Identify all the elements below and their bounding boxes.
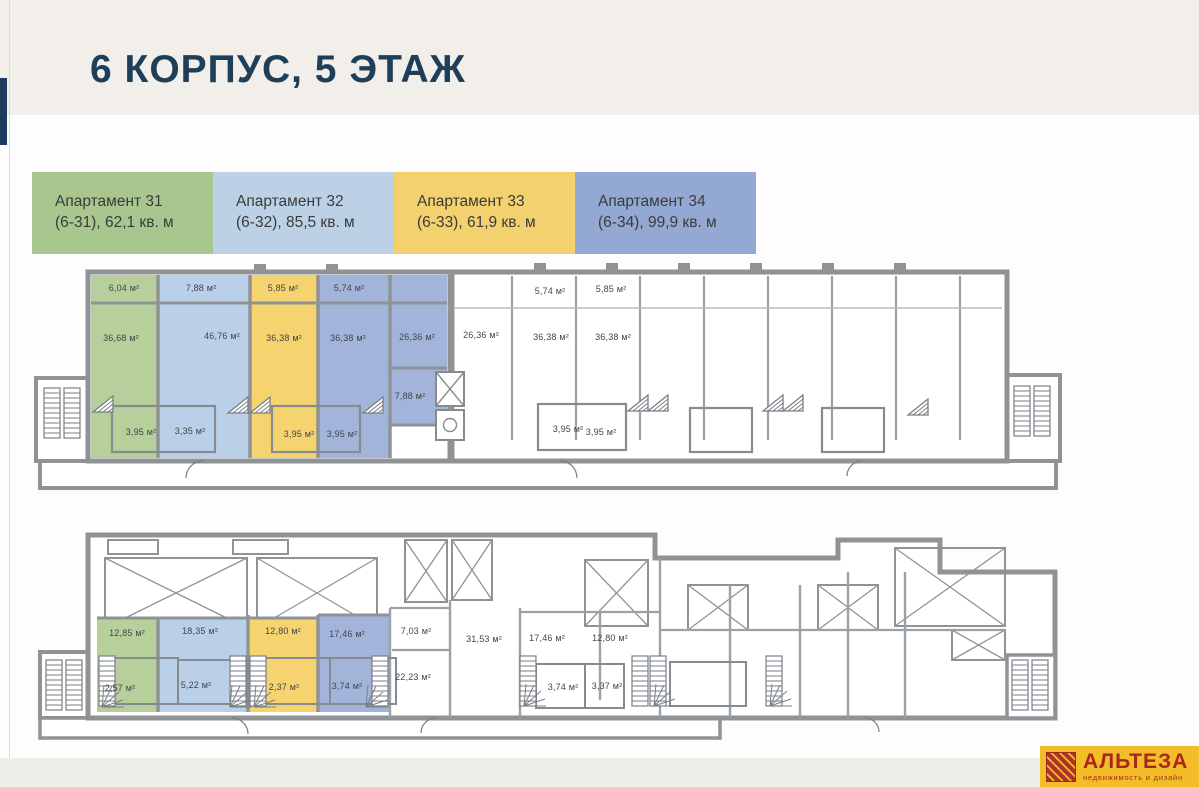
area-label: 3,74 м² [332,681,363,691]
lower-right-stairwell [1007,655,1055,718]
lower-terrace [40,718,720,738]
stairs-icon [1014,386,1030,436]
area-label: 5,85 м² [596,284,627,294]
area-label: 36,38 м² [595,332,631,342]
room-dividers-lower [390,558,1007,718]
apartment-32-area [158,275,250,458]
area-label: 36,38 м² [330,333,366,343]
area-label: 26,36 м² [463,330,499,340]
area-label: 3,95 м² [586,427,617,437]
area-label: 36,68 м² [103,333,139,343]
floorplans: 6,04 м²7,88 м²5,85 м²5,74 м²36,68 м²46,7… [0,0,1199,787]
area-label: 7,88 м² [186,283,217,293]
logo-tagline: недвижимость и дизайн [1083,774,1188,782]
doors-upper [186,461,862,478]
doors-lower [232,718,879,734]
area-label: 36,38 м² [266,333,302,343]
company-logo: АЛЬТЕЗА недвижимость и дизайн [1040,746,1199,787]
upper-right-stairwell [1007,375,1060,461]
area-label: 3,95 м² [284,429,315,439]
stairs-icon [66,660,82,710]
area-label: 22,23 м² [395,672,431,682]
upper-plan-labels: 6,04 м²7,88 м²5,85 м²5,74 м²36,68 м²46,7… [0,0,1199,787]
bathrooms-lower [112,658,746,708]
area-label: 18,35 м² [182,626,218,636]
area-label: 6,04 м² [109,283,140,293]
upper-left-stairwell [36,378,88,461]
area-label: 5,22 м² [181,680,212,690]
floorplan-drawing [0,0,1199,787]
apartment-34-area [318,275,390,458]
logo-mark-icon [1046,752,1076,782]
area-label: 2,57 м² [105,683,136,693]
area-label: 12,80 м² [592,633,628,643]
bottom-band [0,758,1199,787]
apartment-31-lower [97,618,158,712]
stairs-icon [64,388,80,438]
bathrooms-upper [112,404,884,452]
apartment-dividers [158,275,390,458]
area-label: 5,74 м² [334,283,365,293]
apartment-fills-lower [97,615,390,712]
lower-plan-labels: 12,85 м²18,35 м²12,80 м²17,46 м²7,03 м²2… [0,0,1199,787]
balcony-tabs [254,263,906,273]
shafts-lower [105,540,1005,660]
apartment-34-lower [318,615,390,712]
area-label: 3,95 м² [327,429,358,439]
area-label: 3,37 м² [592,681,623,691]
area-label: 46,76 м² [204,331,240,341]
area-label: 3,95 м² [553,424,584,434]
duplex-stairs [99,656,792,707]
area-label: 31,53 м² [466,634,502,644]
upper-terrace [40,461,1056,488]
area-label: 3,95 м² [126,427,157,437]
apartment-34-area-annex [390,275,447,425]
room-dividers-upper [512,276,960,440]
lower-left-stairwell [40,652,88,718]
apartment-dividers-lower [158,615,318,712]
elevator-shaft-icon [436,372,464,406]
area-label: 5,74 м² [535,286,566,296]
stair-triangles-upper [93,395,928,415]
upper-outline [88,272,1007,461]
apartment-33-area [250,275,318,458]
area-label: 12,80 м² [265,626,301,636]
stairs-icon [44,388,60,438]
wc-icon [436,410,464,440]
area-label: 2,37 м² [269,682,300,692]
area-label: 7,88 м² [395,391,426,401]
apartment-33-lower [248,618,318,712]
stairs-icon [1034,386,1050,436]
colored-top-wall [97,615,390,618]
apartment-32-lower [158,618,248,712]
upper-floorplan [36,263,1060,488]
area-label: 12,85 м² [109,628,145,638]
area-label: 26,36 м² [399,332,435,342]
balcony-divider [91,303,447,425]
area-label: 7,03 м² [401,626,432,636]
logo-text: АЛЬТЕЗА недвижимость и дизайн [1083,751,1188,782]
area-label: 17,46 м² [329,629,365,639]
lower-outline [88,535,1055,718]
stairs-icon [1032,660,1048,710]
logo-brand: АЛЬТЕЗА [1083,751,1188,772]
area-label: 5,85 м² [268,283,299,293]
apartment-fills-upper [91,275,447,458]
apartment-31-area [91,275,158,458]
stairs-icon [46,660,62,710]
area-label: 36,38 м² [533,332,569,342]
area-label: 3,74 м² [548,682,579,692]
lower-floorplan [40,535,1055,738]
room-horizontals-lower [390,608,1005,650]
area-label: 17,46 м² [529,633,565,643]
stairs-icon [1012,660,1028,710]
area-label: 3,35 м² [175,426,206,436]
